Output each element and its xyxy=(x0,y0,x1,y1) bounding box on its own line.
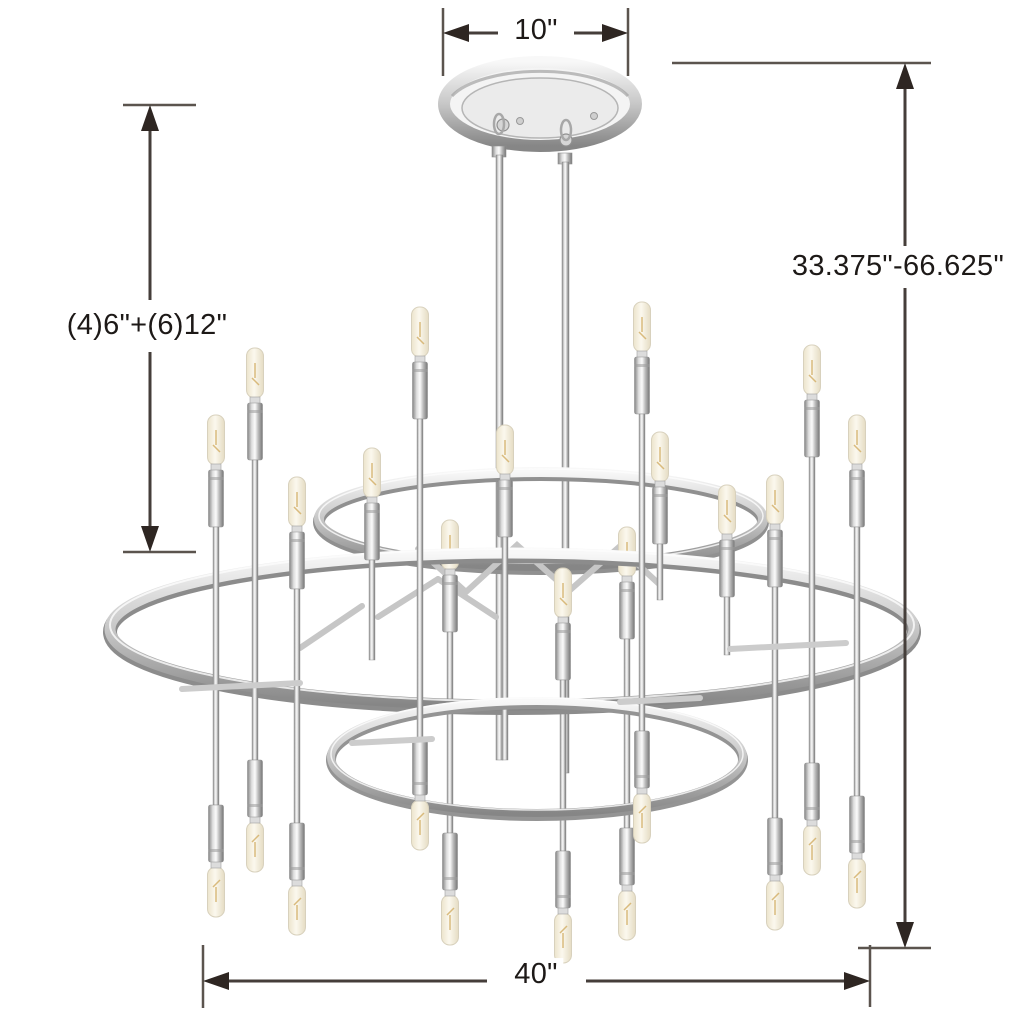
ceiling-canopy xyxy=(444,62,636,146)
arrow-up-icon xyxy=(896,63,914,89)
dimension-label-hanging-height: 33.375"-66.625" xyxy=(786,250,1010,284)
dim-hanging-height xyxy=(672,63,931,948)
arrow-left-icon xyxy=(203,972,229,990)
arrow-up-icon xyxy=(141,105,159,131)
chandelier-illustration xyxy=(0,0,1024,1024)
arrow-right-icon xyxy=(602,24,628,42)
lower-ring xyxy=(331,698,743,816)
outer-candle-arms xyxy=(208,345,866,935)
arrow-down-icon xyxy=(896,922,914,948)
diagram-canvas: 10" (4)6"+(6)12" 33.375"-66.625" 40" xyxy=(0,0,1024,1024)
arrow-right-icon xyxy=(844,972,870,990)
dimension-label-downrods: (4)6"+(6)12" xyxy=(61,309,233,343)
dimension-label-fixture-width: 40" xyxy=(508,958,563,992)
dimension-label-canopy-width: 10" xyxy=(508,14,563,48)
arrow-down-icon xyxy=(141,526,159,552)
arrow-left-icon xyxy=(443,24,469,42)
